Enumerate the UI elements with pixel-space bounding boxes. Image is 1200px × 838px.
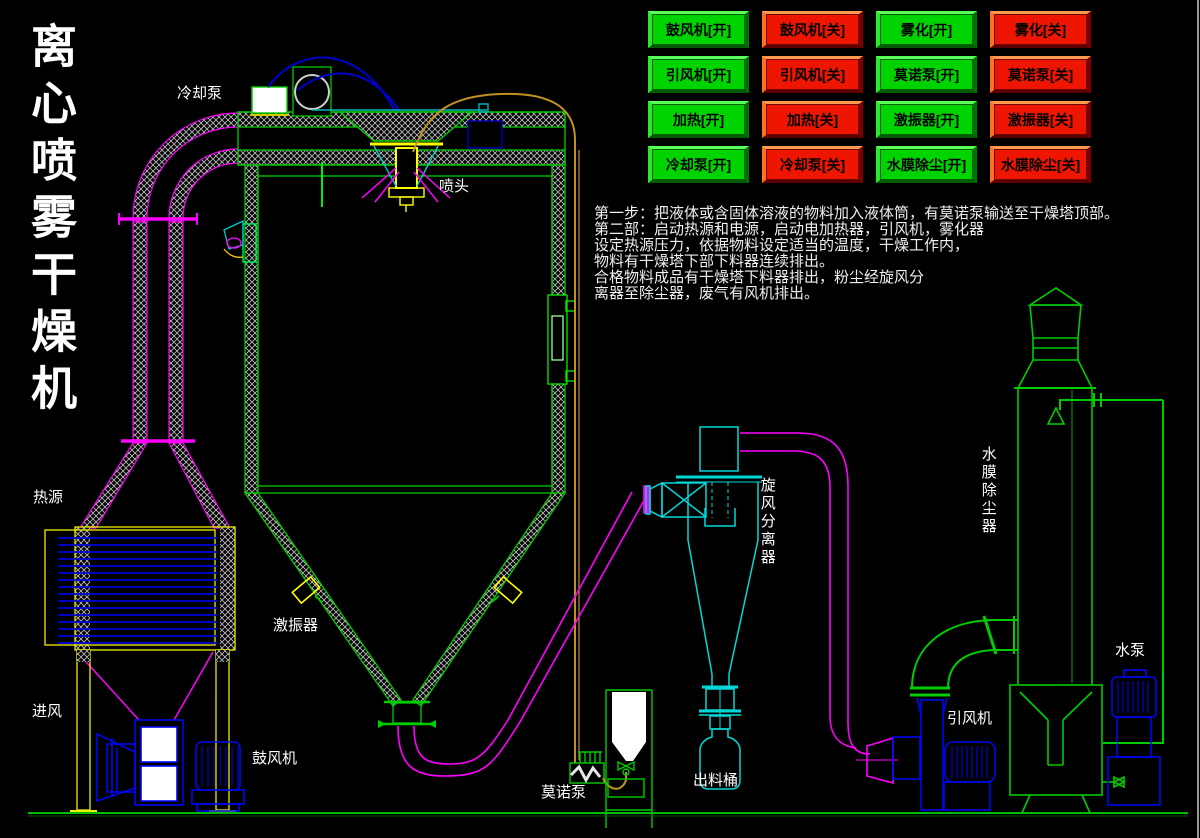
- fan-to-scrubber-elbow: [910, 616, 1018, 695]
- label-discharge-barrel: 出料桶: [693, 773, 738, 789]
- label-mono-pump: 莫诺泵: [541, 785, 586, 801]
- page-title: 离心喷雾干燥机: [18, 22, 84, 442]
- btn-heating-off[interactable]: 加热[关]: [762, 101, 863, 138]
- instructions-line: 第一步：把液体或含固体溶液的物料加入液体筒，有莫诺泵输送至干燥塔顶部。: [594, 206, 1200, 222]
- tower-to-cyclone-duct: [398, 486, 649, 776]
- btn-mono-pump-off[interactable]: 莫诺泵[关]: [990, 56, 1091, 93]
- instructions-line: 设定热源压力，依据物料设定适当的温度，干燥工作内，: [594, 238, 1200, 254]
- label-water-pump: 水泵: [1115, 643, 1145, 659]
- hmi-screen: 离心喷雾干燥机 鼓风机[开] 鼓风机[关] 雾化[开] 雾化[关] 引风机[开]…: [0, 0, 1200, 838]
- btn-water-film-off[interactable]: 水膜除尘[关]: [990, 146, 1091, 183]
- label-induced-draft-fan: 引风机: [947, 711, 992, 727]
- btn-draft-fan-off[interactable]: 引风机[关]: [762, 56, 863, 93]
- label-cyclone-separator: 旋风分离器: [759, 477, 775, 567]
- ground-line: [28, 813, 1188, 816]
- hot-air-duct: [80, 113, 238, 528]
- btn-heating-on[interactable]: 加热[开]: [648, 101, 749, 138]
- label-air-inlet: 进风: [32, 704, 62, 720]
- btn-cooling-pump-off[interactable]: 冷却泵[关]: [762, 146, 863, 183]
- label-cooling-pump: 冷却泵: [177, 86, 222, 102]
- btn-mono-pump-on[interactable]: 莫诺泵[开]: [876, 56, 977, 93]
- label-blower: 鼓风机: [252, 751, 297, 767]
- tower-access-door: [548, 295, 575, 384]
- btn-atomize-off[interactable]: 雾化[关]: [990, 11, 1091, 48]
- instructions-text: 第一步：把液体或含固体溶液的物料加入液体筒，有莫诺泵输送至干燥塔顶部。 第二部：…: [594, 206, 1200, 302]
- btn-vibrator-on[interactable]: 激振器[开]: [876, 101, 977, 138]
- cyclone-separator: [646, 427, 762, 729]
- liquid-tank: [606, 690, 652, 828]
- btn-atomize-on[interactable]: 雾化[开]: [876, 11, 977, 48]
- blower-fan: [97, 720, 244, 811]
- instructions-line: 物料有干燥塔下部下料器连续排出。: [594, 254, 1200, 270]
- btn-blower-off[interactable]: 鼓风机[关]: [762, 11, 863, 48]
- label-water-film-dust-remover: 水膜除尘器: [980, 446, 996, 536]
- instructions-line: 合格物料成品有干燥塔下料器排出，粉尘经旋风分: [594, 270, 1200, 286]
- label-heat-source: 热源: [33, 490, 63, 506]
- water-film-scrubber: [1010, 288, 1163, 813]
- btn-cooling-pump-on[interactable]: 冷却泵[开]: [648, 146, 749, 183]
- btn-blower-on[interactable]: 鼓风机[开]: [648, 11, 749, 48]
- btn-vibrator-off[interactable]: 激振器[关]: [990, 101, 1091, 138]
- btn-draft-fan-on[interactable]: 引风机[开]: [648, 56, 749, 93]
- instructions-line: 第二部：启动热源和电源，启动电加热器，引风机，雾化器: [594, 222, 1200, 238]
- btn-water-film-on[interactable]: 水膜除尘[开]: [876, 146, 977, 183]
- water-pump-unit: [1103, 670, 1160, 805]
- instructions-line: 离器至除尘器，废气有风机排出。: [594, 286, 1200, 302]
- label-spray-head: 喷头: [439, 179, 469, 195]
- control-button-grid: 鼓风机[开] 鼓风机[关] 雾化[开] 雾化[关] 引风机[开] 引风机[关] …: [648, 11, 1091, 183]
- label-vibrator: 激振器: [273, 618, 318, 634]
